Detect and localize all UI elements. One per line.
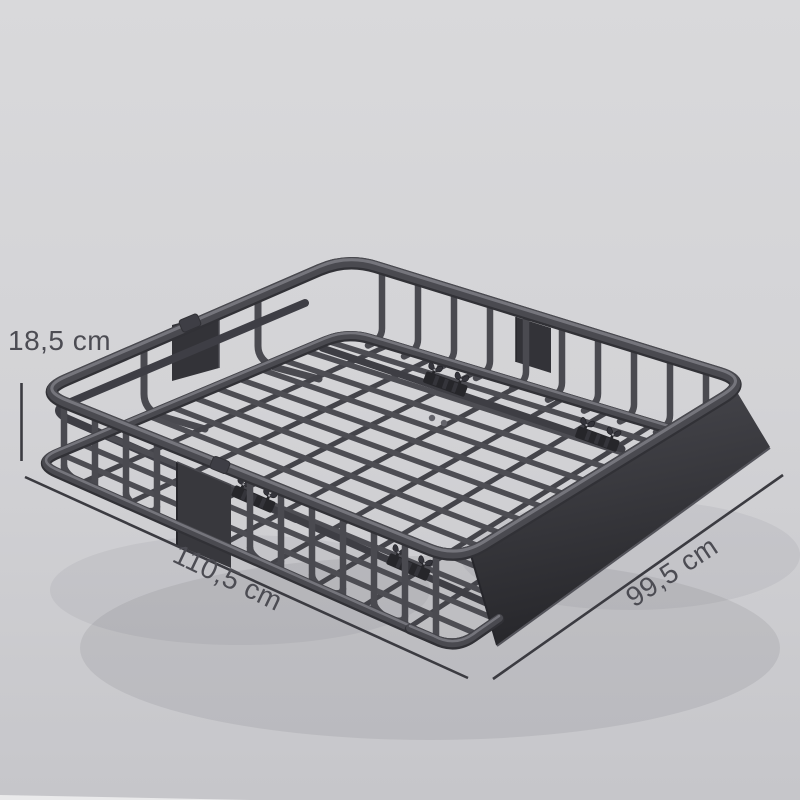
product-render: 18,5 cm 110,5 cm 99,5 cm <box>0 0 800 800</box>
height-dimension-label: 18,5 cm <box>8 325 111 356</box>
